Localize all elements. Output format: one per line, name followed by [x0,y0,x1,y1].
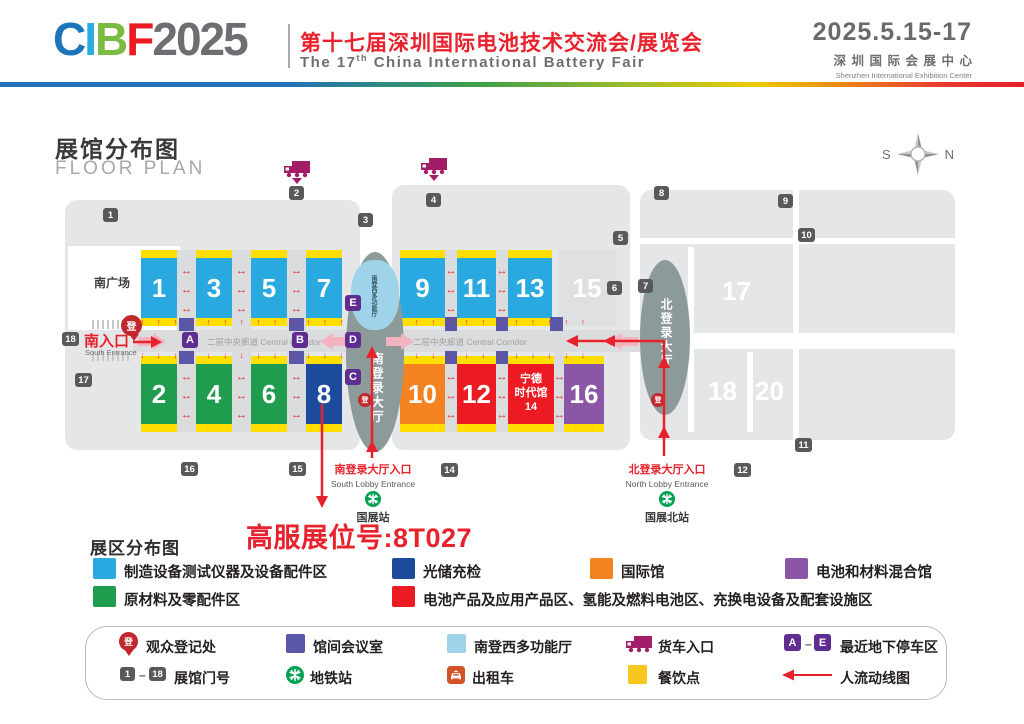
zone-label: 光储充检 [423,561,481,582]
booth-callout: 高服展位号:8T027 [246,516,472,555]
gate-9: 9 [778,194,793,208]
legend-parking-a-badge: A [784,634,801,651]
metro-icon [365,491,381,507]
metro-icon [659,491,675,507]
gate-4: 4 [426,193,441,207]
zone-swatch [590,558,613,579]
legend-parking-e-badge: E [814,634,831,651]
gate-10: 10 [798,228,815,242]
legend-taxi-label: 出租车 [472,668,514,688]
legend-multi-swatch [447,634,466,653]
gate-16: 16 [181,462,198,476]
truck-down-arrow-icon [429,175,439,181]
gate-17: 17 [75,373,92,387]
parking-badge-e: E [345,295,361,311]
legend-registration-label: 观众登记处 [146,637,216,657]
legend-parking-label: 最近地下停车区 [840,637,938,657]
north-lobby-entrance-zh: 北登录大厅入口 [629,461,706,477]
parking-badge-d: D [345,332,361,348]
north-lobby-entrance-en: North Lobby Entrance [626,479,709,489]
legend-truck-label: 货车入口 [658,637,714,657]
truck-icon [421,158,447,175]
range-dash: – [805,637,812,651]
zone-label: 电池和材料混合馆 [816,561,932,582]
legend-flow-arrow-icon [782,668,832,682]
zone-swatch [392,558,415,579]
zone-label: 电池产品及应用产品区、氢能及燃料电池区、充换电设备及配套设施区 [423,589,873,610]
legend-registration-icon: 登 [119,632,138,656]
legend-meeting-label: 馆间会议室 [313,637,383,657]
gate-6: 6 [607,281,622,295]
gate-3: 3 [358,213,373,227]
parking-badge-b: B [292,332,308,348]
registration-pin-icon: 登 [121,315,142,336]
legend-multi-label: 南登西多功能厅 [474,637,572,657]
south-lobby-entrance-en: South Lobby Entrance [331,479,415,489]
gate-8: 8 [654,186,669,200]
legend-truck-icon [626,636,652,653]
legend-gate-1-badge: 1 [120,667,135,681]
range-dash: – [139,668,146,682]
station-north-label: 国展北站 [645,509,689,525]
legend-metro-icon [286,666,304,684]
poster-canvas: CIBF2025 第十七届深圳国际电池技术交流会/展览会 The 17th Ch… [0,0,1024,724]
zone-swatch [785,558,808,579]
zone-label: 制造设备测试仪器及设备配件区 [124,561,327,582]
legend-meeting-swatch [286,634,305,653]
registration-pin: 登 [121,315,142,341]
truck-icon [284,161,310,178]
gate-7: 7 [638,279,653,293]
legend-food-swatch [628,665,647,684]
legend-flow-label: 人流动线图 [840,668,910,688]
legend-metro-label: 地铁站 [310,668,352,688]
gate-1: 1 [103,208,118,222]
zone-label: 原材料及零配件区 [124,589,240,610]
zone-swatch [93,586,116,607]
truck-entrance [284,161,310,184]
south-lobby-entrance-zh: 南登录大厅入口 [335,461,412,477]
zones-legend-title: 展区分布图 [90,534,180,559]
zone-swatch [93,558,116,579]
truck-entrance [421,158,447,181]
gate-14: 14 [441,463,458,477]
gate-11: 11 [795,438,812,452]
south-entrance-en: South Entrance [85,348,137,357]
gate-15: 15 [289,462,306,476]
parking-badge-a: A [182,332,198,348]
zone-label: 国际馆 [621,561,665,582]
legend-food-label: 餐饮点 [658,668,700,688]
gate-18: 18 [62,332,79,346]
gate-5: 5 [613,231,628,245]
north-lobby-entrance: 北登录大厅入口 North Lobby Entrance 国展北站 [612,461,722,525]
legend-taxi-icon [447,666,465,684]
zone-swatch [392,586,415,607]
flow-overlay [0,0,1024,724]
legend-gate-18-badge: 18 [149,667,166,681]
pin-tip [124,649,134,656]
gate-2: 2 [289,186,304,200]
parking-badge-c: C [345,369,361,385]
truck-down-arrow-icon [292,178,302,184]
pin-tip [129,334,139,341]
legend-gate-label: 展馆门号 [174,668,230,688]
gate-12: 12 [734,463,751,477]
